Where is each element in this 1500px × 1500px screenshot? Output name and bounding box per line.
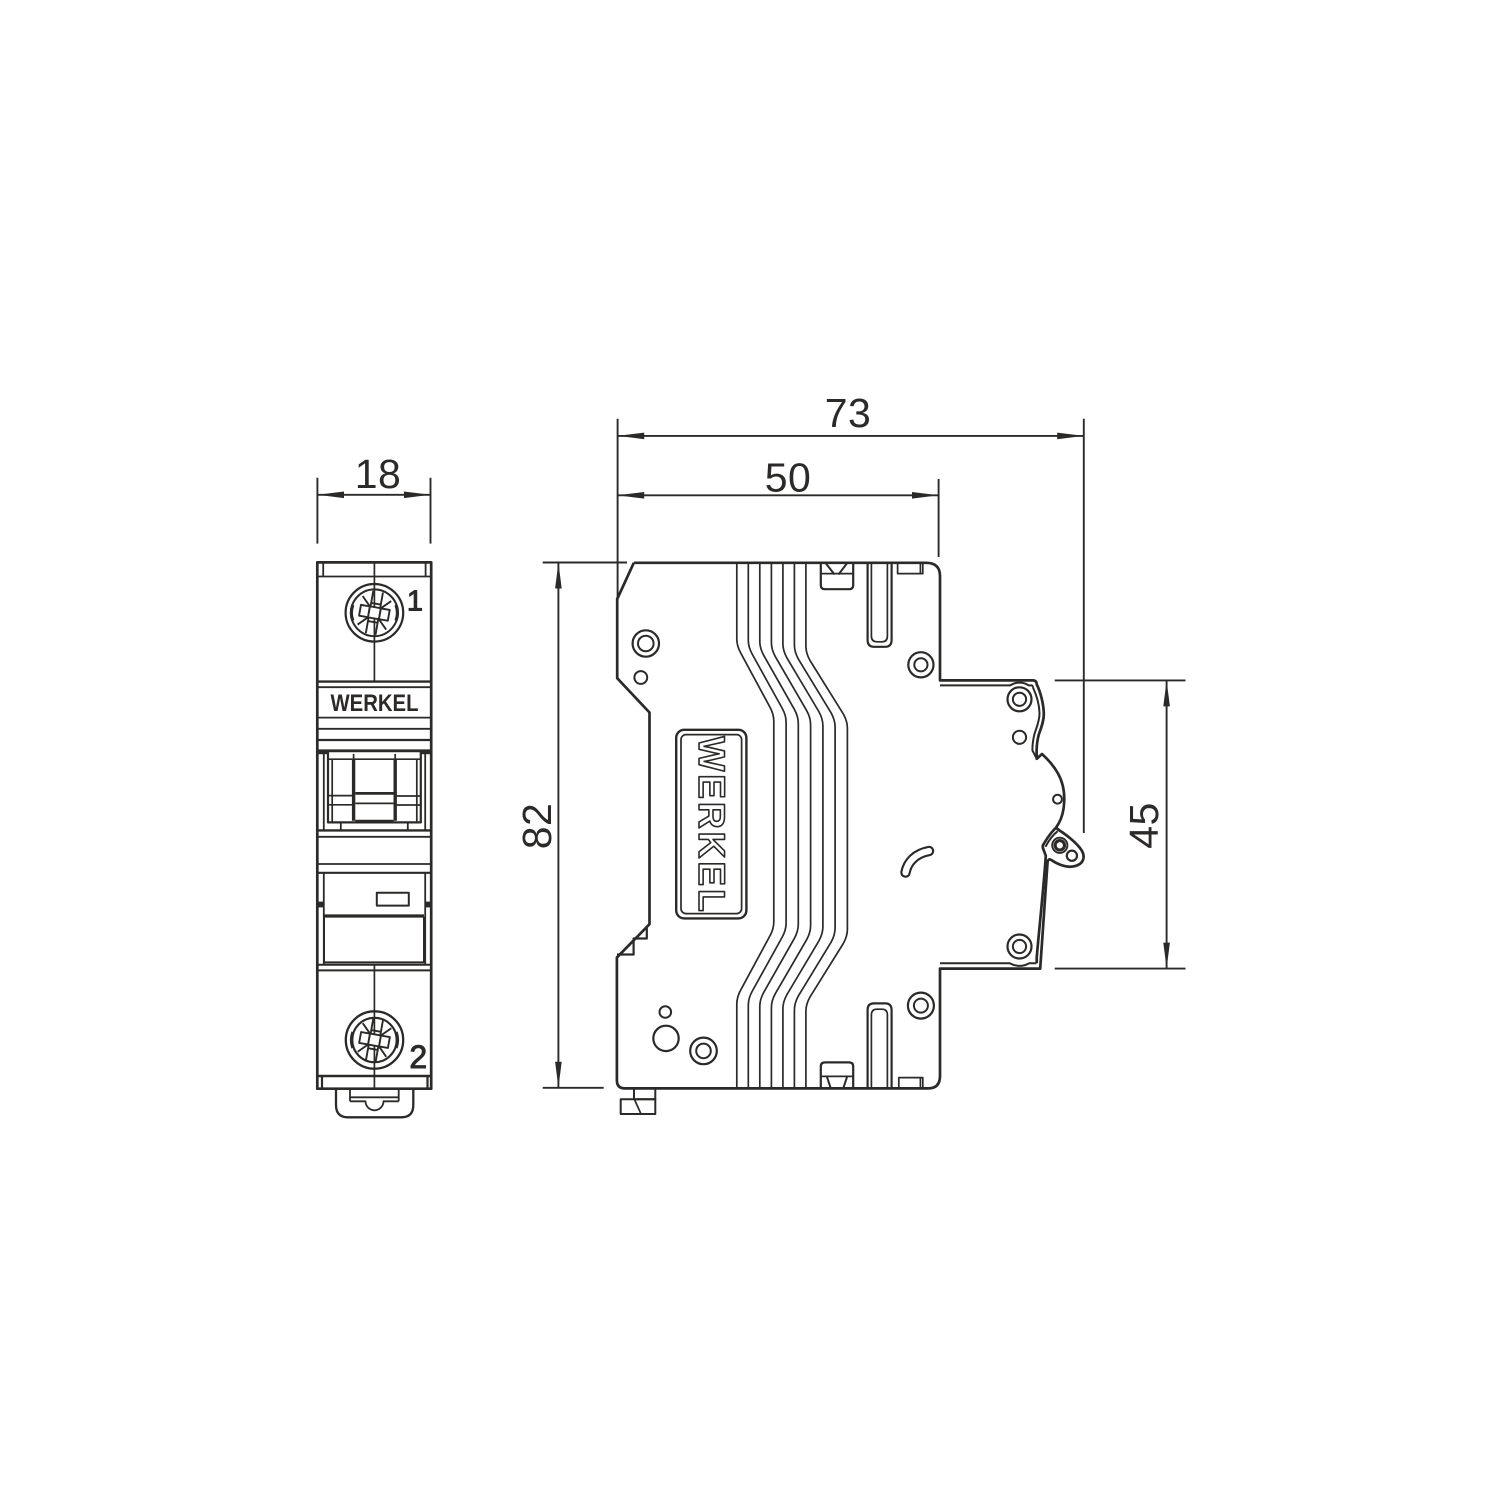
svg-text:WERKEL: WERKEL <box>331 690 419 717</box>
svg-text:50: 50 <box>765 455 812 501</box>
svg-text:1: 1 <box>407 586 423 618</box>
svg-text:WERKEL: WERKEL <box>691 736 732 914</box>
svg-text:82: 82 <box>514 803 560 850</box>
svg-text:18: 18 <box>355 451 402 497</box>
svg-text:2: 2 <box>409 1039 427 1075</box>
svg-text:45: 45 <box>1121 802 1167 849</box>
svg-text:73: 73 <box>825 390 872 436</box>
